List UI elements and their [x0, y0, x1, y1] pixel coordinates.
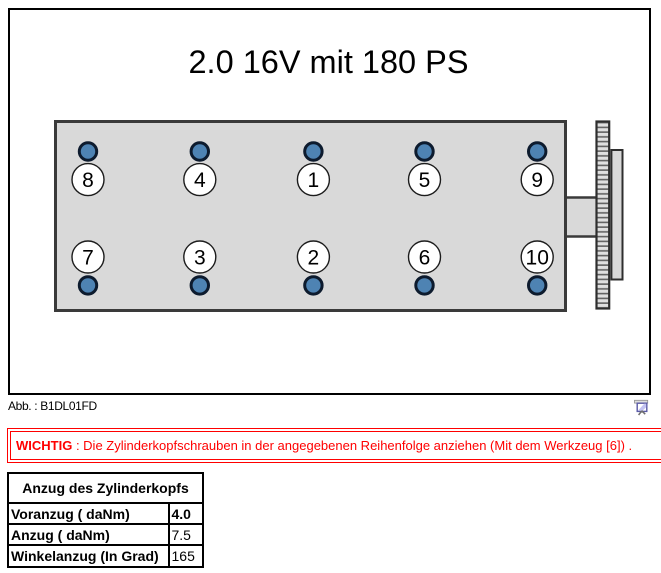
svg-text:4: 4 — [194, 169, 206, 192]
svg-text:1: 1 — [308, 169, 320, 192]
svg-text:5: 5 — [419, 169, 431, 192]
svg-text:10: 10 — [526, 246, 549, 269]
svg-text:8: 8 — [82, 169, 94, 192]
svg-text:6: 6 — [419, 246, 431, 269]
svg-text:9: 9 — [531, 169, 543, 192]
svg-text:2: 2 — [308, 246, 320, 269]
svg-text:3: 3 — [194, 246, 206, 269]
svg-text:7: 7 — [82, 246, 94, 269]
